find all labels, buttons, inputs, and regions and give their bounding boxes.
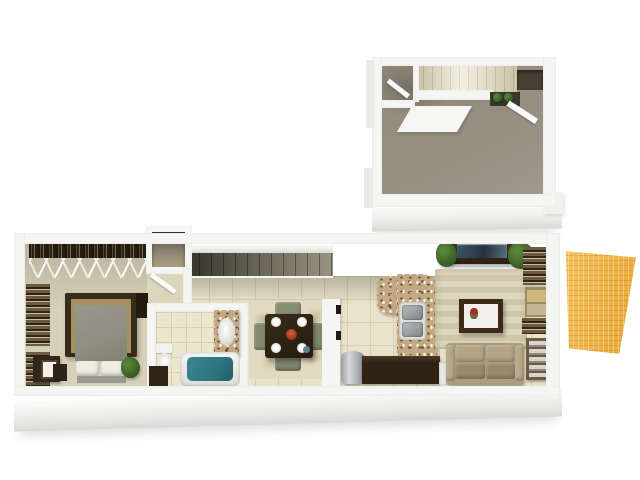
main-wall-right xyxy=(546,233,560,389)
sofa-seat-cushion-left xyxy=(455,363,485,379)
main-wall-top xyxy=(14,233,558,244)
wall-shelf-lower xyxy=(522,318,548,334)
flat-tv-screen xyxy=(457,244,507,258)
framed-art xyxy=(459,299,503,333)
sofa-seat-cushion-right xyxy=(486,363,515,379)
main-floor-unit xyxy=(0,0,640,480)
main-wall-left xyxy=(14,233,25,395)
living-plant-left-icon xyxy=(436,242,457,267)
wall-shelf-top xyxy=(523,247,548,285)
sofa-back-cushion-left xyxy=(455,345,485,362)
main-wall-bottom xyxy=(14,386,560,396)
sofa-back-cushion-right xyxy=(486,345,515,362)
sofa-arm-right xyxy=(515,345,524,381)
shelf-box-lower xyxy=(527,304,546,315)
framed-art-flower xyxy=(470,308,478,319)
sofa-arm-left xyxy=(446,345,455,381)
shelf-box-upper xyxy=(527,290,546,302)
floorplan-canvas xyxy=(0,0,640,480)
